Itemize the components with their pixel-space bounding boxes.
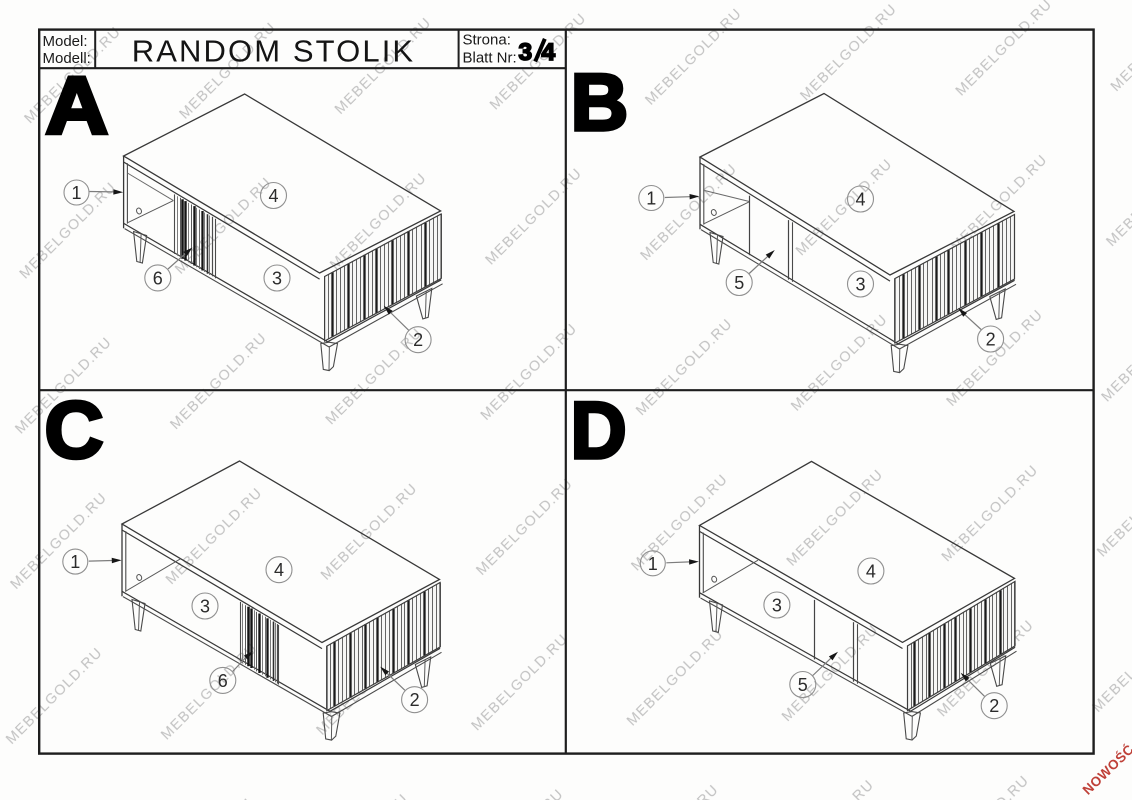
svg-text:3: 3 [772, 596, 782, 616]
svg-text:A: A [46, 60, 109, 151]
svg-text:3: 3 [200, 597, 210, 617]
svg-text:2: 2 [986, 330, 996, 350]
svg-text:1: 1 [646, 189, 656, 209]
svg-text:5: 5 [798, 675, 808, 695]
svg-text:4: 4 [274, 560, 284, 580]
svg-text:2: 2 [413, 330, 423, 350]
svg-text:1: 1 [648, 554, 658, 574]
svg-text:4: 4 [542, 39, 556, 66]
svg-text:Blatt Nr:: Blatt Nr: [463, 50, 517, 67]
svg-text:RANDOM STOLIK: RANDOM STOLIK [132, 34, 415, 69]
svg-text:1: 1 [71, 183, 81, 203]
svg-text:3: 3 [519, 39, 533, 66]
svg-text:Model:: Model: [43, 33, 88, 50]
svg-text:4: 4 [866, 562, 876, 582]
svg-text:B: B [571, 58, 629, 148]
svg-text:6: 6 [153, 268, 163, 288]
svg-text:6: 6 [218, 671, 228, 691]
svg-text:4: 4 [855, 190, 865, 210]
svg-text:D: D [571, 385, 627, 476]
svg-text:4: 4 [268, 186, 278, 206]
svg-text:2: 2 [989, 696, 999, 716]
svg-text:5: 5 [734, 273, 744, 293]
svg-text:3: 3 [855, 275, 865, 295]
svg-text:3: 3 [272, 269, 282, 289]
svg-text:1: 1 [70, 552, 80, 572]
svg-text:Strona:: Strona: [463, 32, 511, 49]
svg-text:2: 2 [410, 690, 420, 710]
svg-text:C: C [45, 385, 104, 476]
